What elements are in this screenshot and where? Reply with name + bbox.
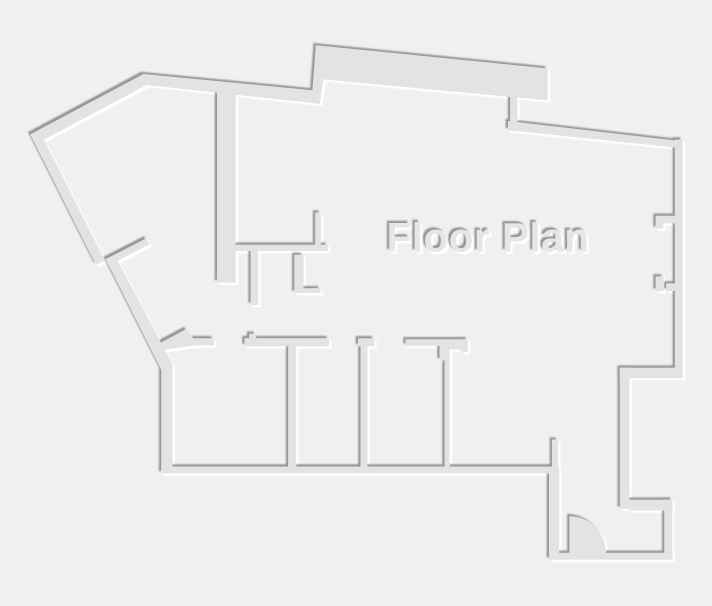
svg-text:Floor Plan: Floor Plan <box>387 215 590 261</box>
